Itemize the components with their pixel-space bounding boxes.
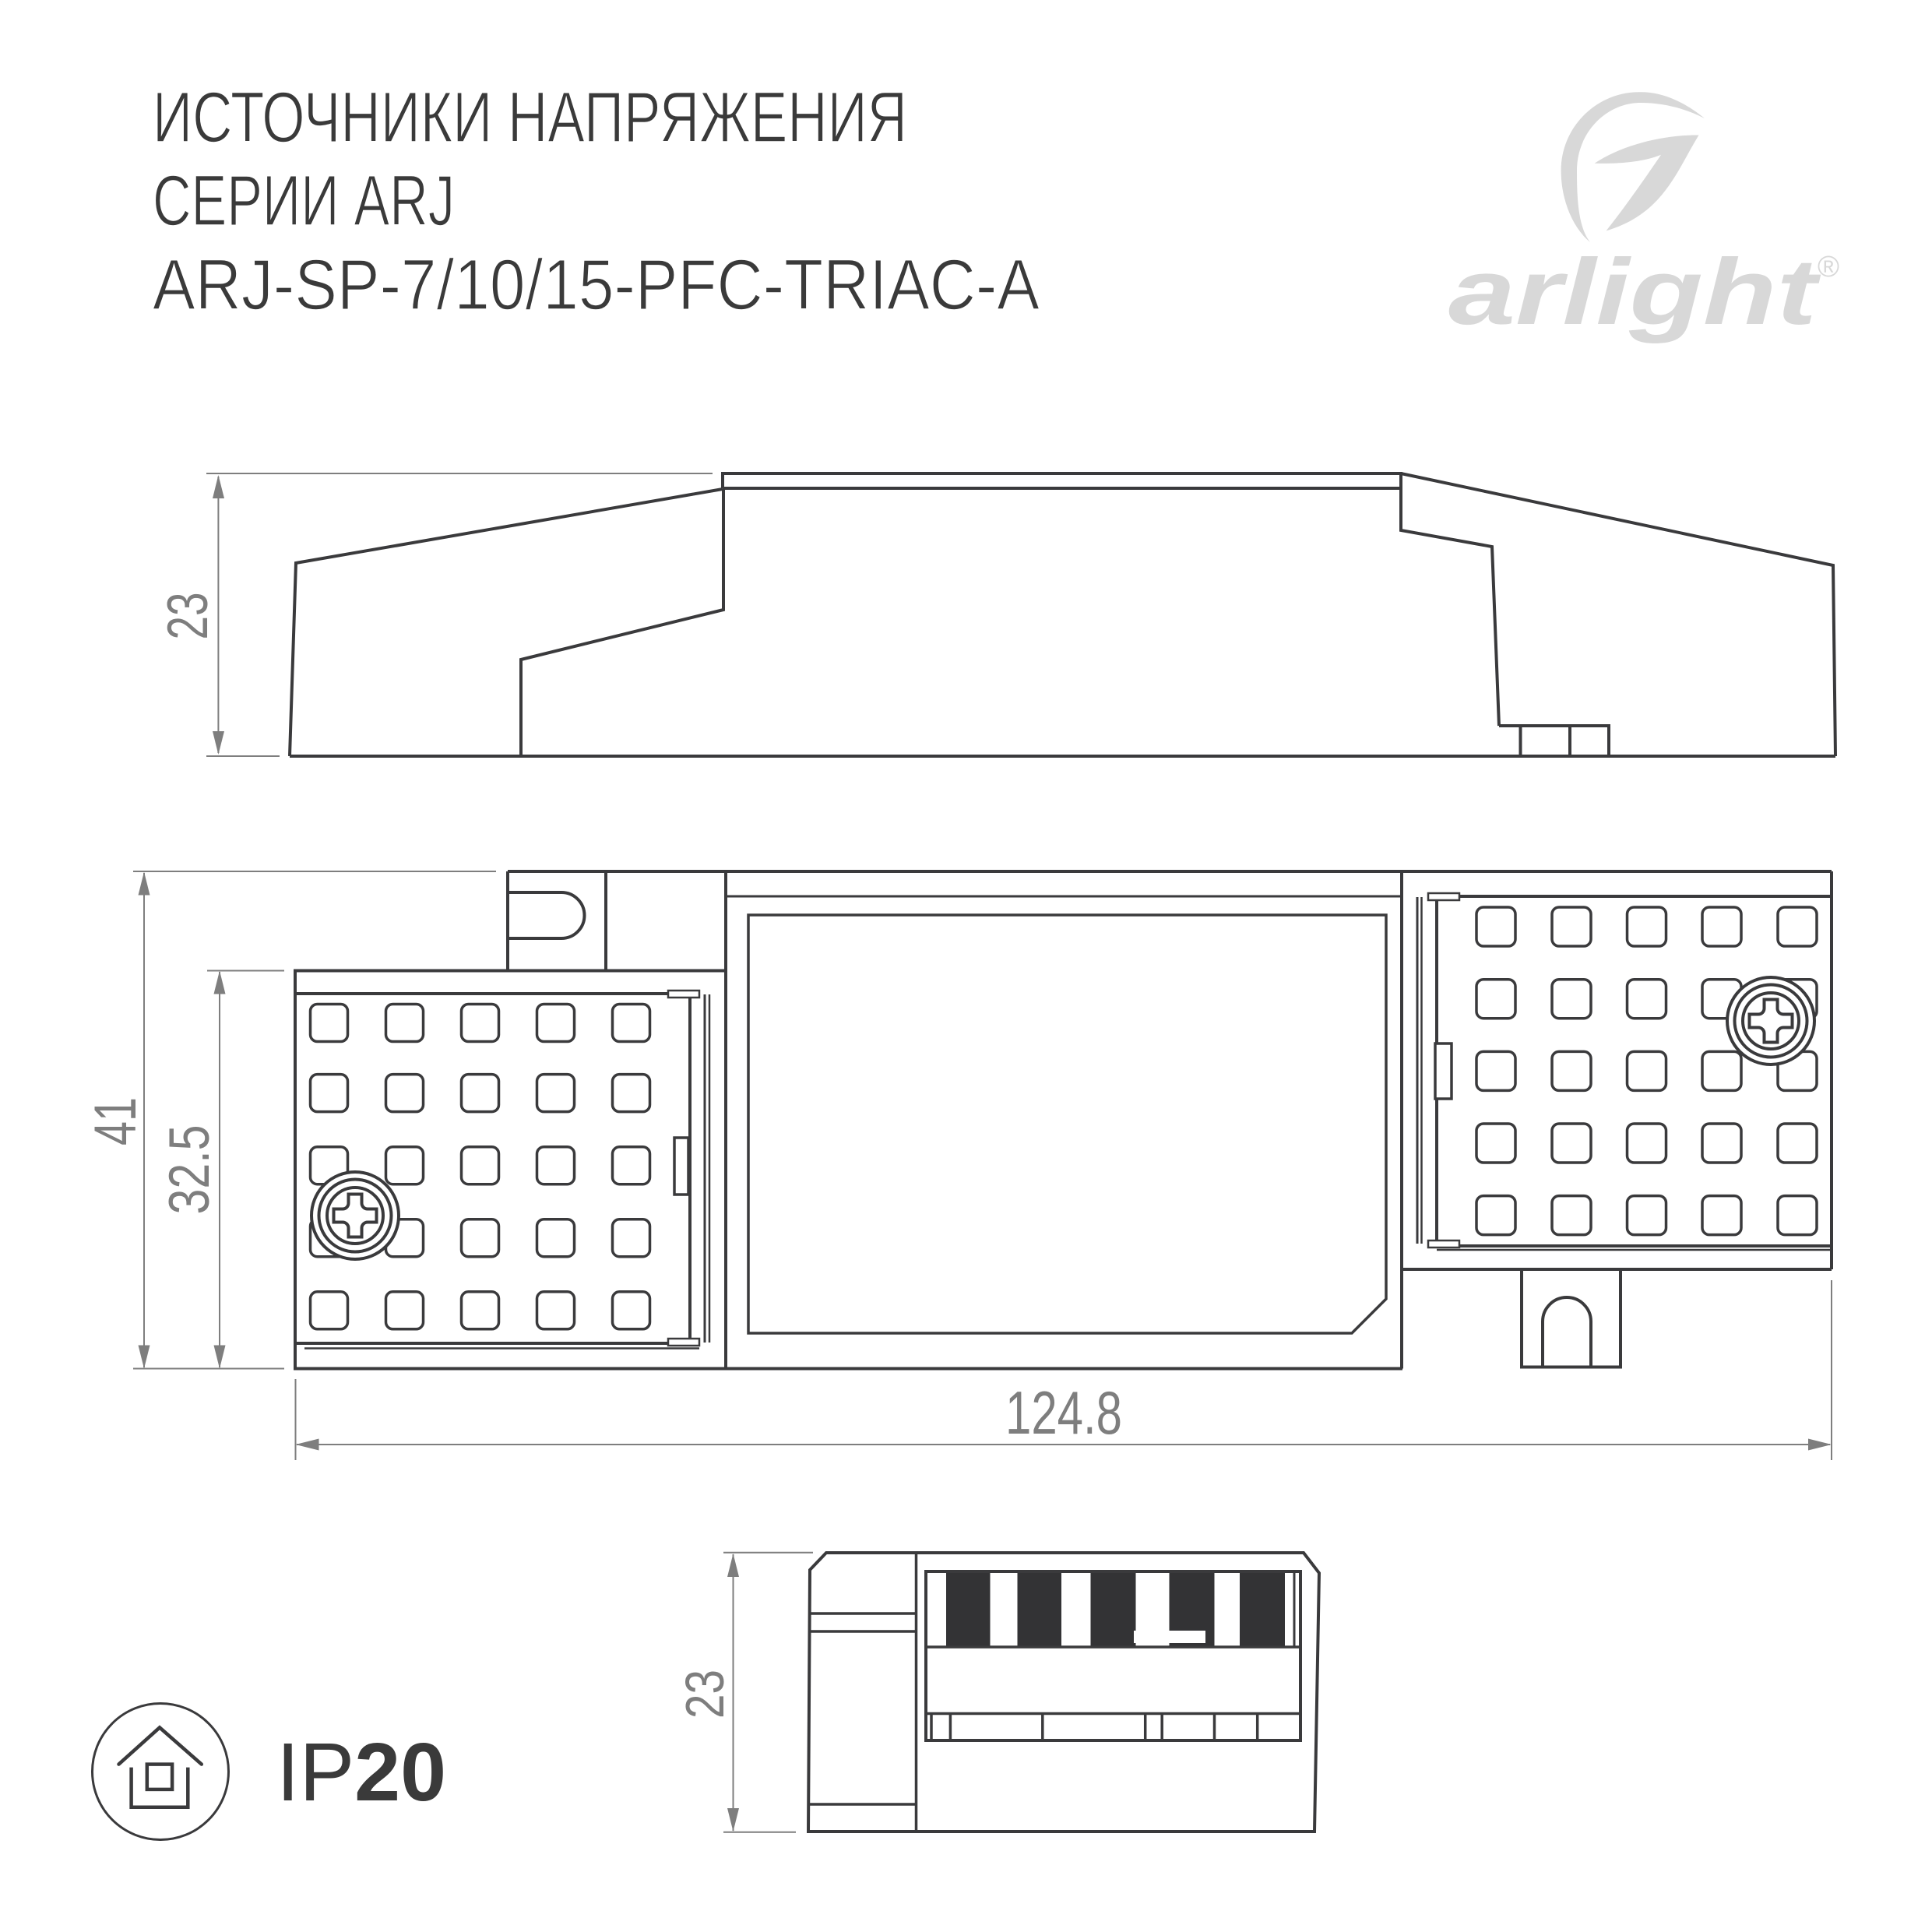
svg-text:ARJ-SP-7/10/15-PFC-TRIAC-A: ARJ-SP-7/10/15-PFC-TRIAC-A (153, 245, 1040, 325)
svg-text:СЕРИИ ARJ: СЕРИИ ARJ (153, 161, 455, 241)
svg-text:ИСТОЧНИКИ НАПРЯЖЕНИЯ: ИСТОЧНИКИ НАПРЯЖЕНИЯ (153, 78, 907, 157)
svg-text:IP20: IP20 (276, 1726, 446, 1818)
svg-text:23: 23 (674, 1670, 735, 1719)
svg-text:®: ® (1818, 251, 1839, 283)
svg-text:32.5: 32.5 (158, 1125, 221, 1215)
svg-text:arlight: arlight (1448, 240, 1821, 344)
svg-text:23: 23 (157, 593, 220, 640)
svg-text:124.8: 124.8 (1005, 1378, 1122, 1447)
svg-text:41: 41 (83, 1097, 149, 1145)
